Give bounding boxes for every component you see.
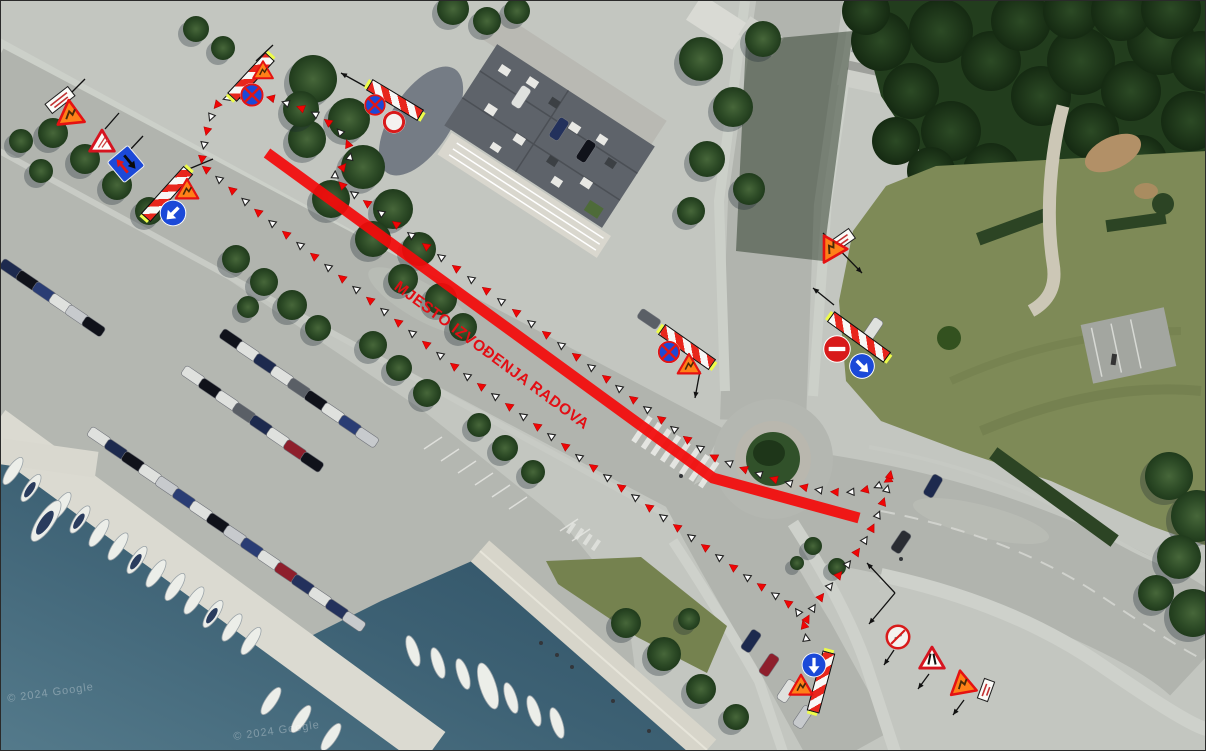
roadworks-warning-triangle (810, 227, 849, 265)
info-plate (44, 86, 76, 115)
roadworks-traffic-plan-map: MJESTO IZVOĐENJA RADOVA © 2024 Google © … (0, 0, 1206, 751)
roadworks-warning-triangle (252, 60, 274, 80)
roadwork-barrier (227, 52, 275, 102)
warning-triangle (88, 128, 117, 154)
roadworks-warning-triangle (788, 674, 814, 697)
roadwork-barrier (658, 324, 716, 370)
info-plate (977, 678, 996, 703)
no-stopping-sign (364, 94, 387, 117)
roadworks-warning-triangle (54, 97, 87, 127)
no-vehicles-sign (382, 110, 406, 134)
roadwork-barrier (366, 79, 424, 121)
no-stopping-sign (657, 340, 681, 364)
no-parking-sign (886, 625, 911, 650)
roadworks-warning-triangle (677, 353, 702, 376)
road-narrows-warning-triangle (918, 645, 947, 671)
roadwork-barrier (827, 311, 891, 363)
roadworks-warning-triangle (945, 667, 978, 698)
no-entry-sign (823, 335, 852, 364)
priority-oncoming-traffic-sign (106, 144, 145, 183)
traffic-signs-layer (1, 1, 1206, 751)
info-plate (826, 228, 856, 255)
mandatory-direction-straight-sign (801, 652, 827, 678)
keep-left-sign (159, 199, 187, 227)
roadwork-barrier (807, 650, 836, 713)
no-stopping-sign (240, 83, 265, 108)
roadworks-warning-triangle (175, 178, 200, 201)
mandatory-direction-right-sign (849, 353, 876, 380)
roadwork-barrier (141, 166, 193, 222)
